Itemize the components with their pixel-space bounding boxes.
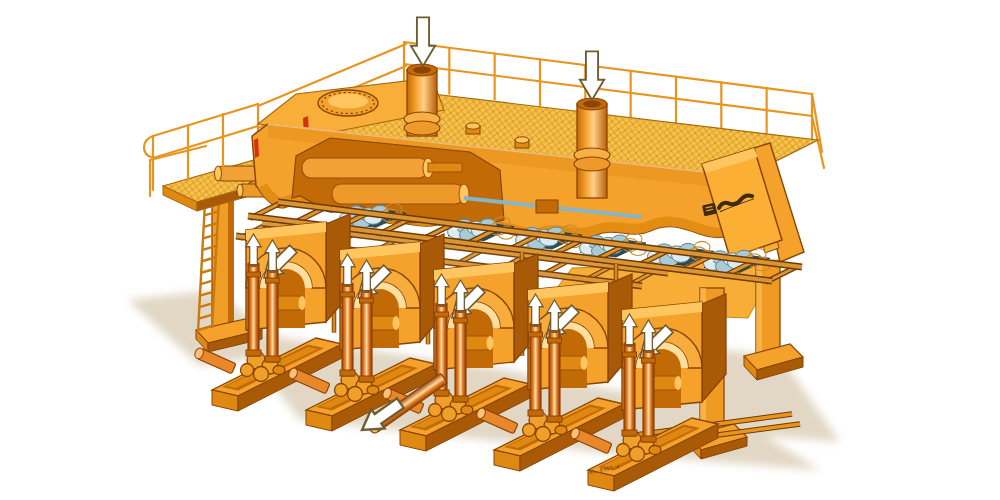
machine-cutaway-illustration: KL 0903 A: [0, 0, 1000, 500]
standpipe-left: [404, 64, 440, 136]
feed-arrow-right: [580, 51, 604, 100]
railing-corner-curve: [144, 136, 153, 158]
deck-stub-1: [466, 123, 480, 134]
hydraulic-cylinder-lower: [332, 184, 464, 204]
feed-arrow-left: [411, 17, 435, 66]
support-column-shade: [228, 198, 234, 332]
manhole-cover-1: [318, 90, 378, 116]
piston-rod-upper: [428, 163, 462, 172]
rod-coupling: [536, 200, 558, 213]
hydraulic-cylinder-upper: [302, 158, 428, 178]
standpipe-right: [574, 98, 610, 198]
deck-stub-2: [515, 137, 529, 148]
strand-modules: [193, 214, 726, 491]
railing-top-rail: [404, 42, 812, 94]
